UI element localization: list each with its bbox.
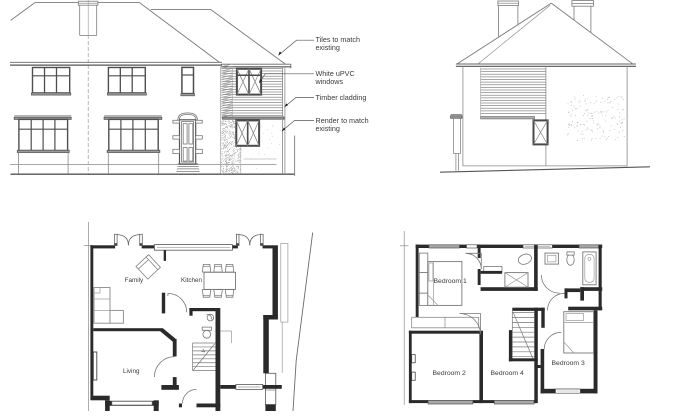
svg-text:Living: Living	[123, 368, 140, 375]
svg-text:windows: windows	[315, 77, 344, 86]
svg-text:Bedroom 1: Bedroom 1	[434, 278, 467, 285]
svg-text:Family: Family	[125, 277, 144, 284]
svg-text:Kitchen: Kitchen	[181, 277, 203, 284]
svg-text:Bedroom 2: Bedroom 2	[433, 370, 466, 377]
svg-text:existing: existing	[316, 124, 340, 133]
svg-text:Timber cladding: Timber cladding	[316, 93, 367, 102]
svg-text:Bedroom 3: Bedroom 3	[552, 360, 585, 367]
svg-text:existing: existing	[316, 43, 340, 52]
svg-text:Bedroom 4: Bedroom 4	[491, 370, 524, 377]
